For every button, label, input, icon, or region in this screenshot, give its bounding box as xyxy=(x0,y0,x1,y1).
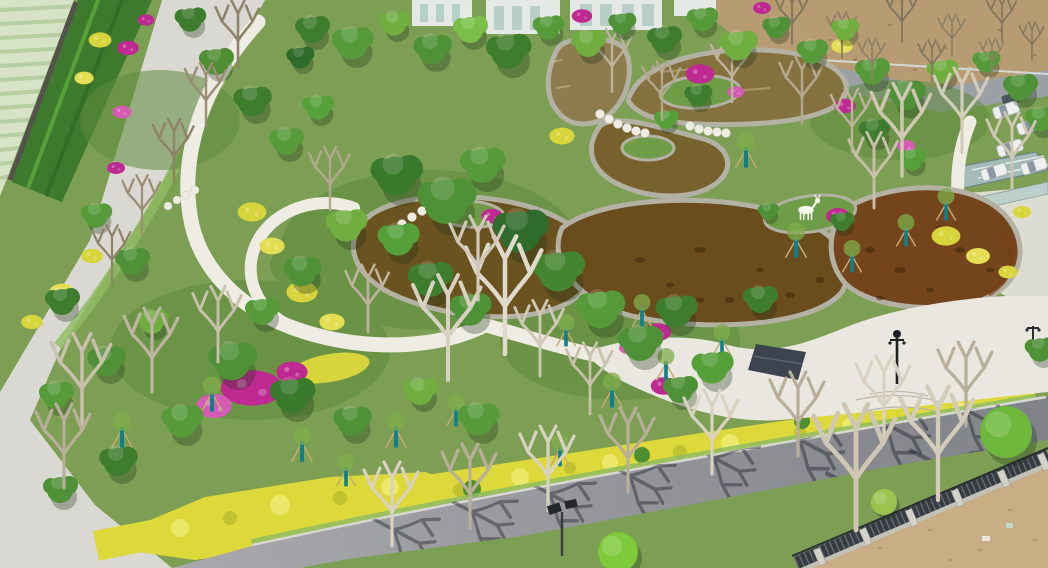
magenta-flowers xyxy=(112,106,131,119)
magenta-flowers xyxy=(753,2,771,14)
yellow-flowers xyxy=(259,238,284,255)
yellow-flowers xyxy=(74,72,93,85)
yellow-flowers xyxy=(1013,206,1031,218)
yellow-flowers xyxy=(21,315,43,329)
park-scene xyxy=(0,0,1048,568)
yellow-flowers xyxy=(238,202,267,221)
yellow-flowers xyxy=(89,32,112,47)
yellow-flowers xyxy=(966,248,990,264)
azalea-bush xyxy=(686,64,715,83)
island xyxy=(622,136,674,160)
magenta-flowers xyxy=(572,9,592,23)
debris xyxy=(982,536,990,541)
yellow-flowers xyxy=(81,249,103,263)
magenta-flowers xyxy=(728,86,745,97)
yellow-flowers xyxy=(549,128,574,145)
aerial-park-photo xyxy=(0,0,1048,568)
yellow-flowers xyxy=(998,266,1017,279)
yellow-flowers xyxy=(932,226,961,245)
magenta-flowers xyxy=(107,162,125,174)
magenta-flowers xyxy=(117,41,139,55)
yellow-flowers xyxy=(319,314,344,331)
debris xyxy=(1006,523,1013,528)
magenta-flowers xyxy=(138,14,155,25)
